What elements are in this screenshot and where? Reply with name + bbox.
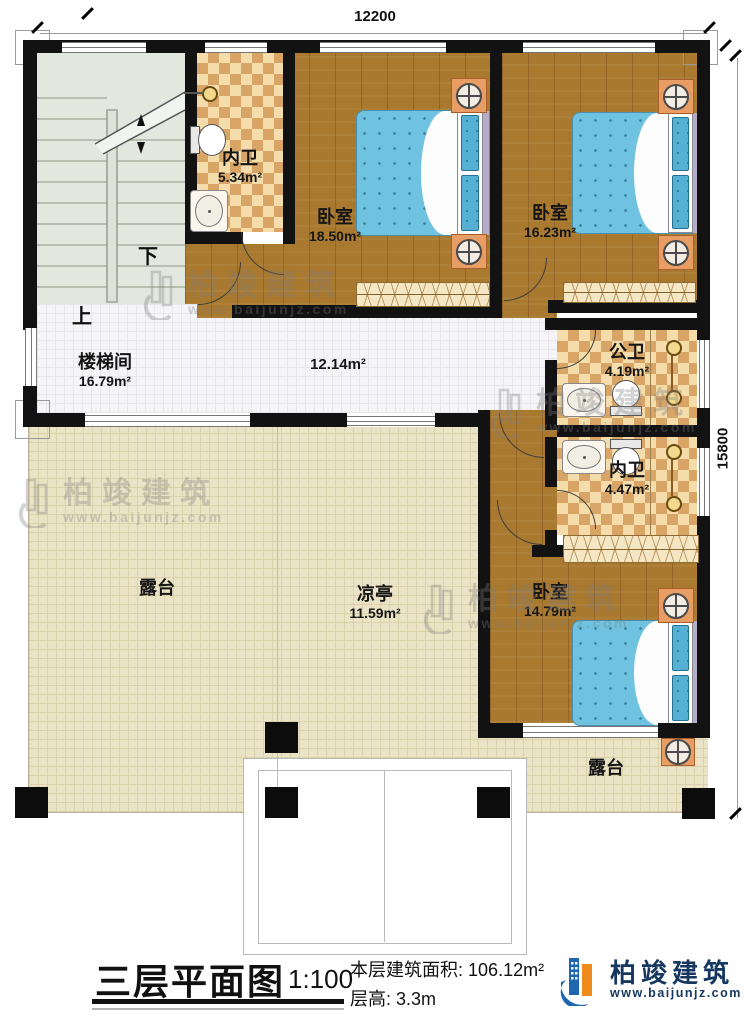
window: [85, 415, 250, 427]
room-label-stairwell: 楼梯间16.79m²: [45, 352, 165, 389]
wall: [490, 52, 502, 318]
porch-divider: [384, 770, 385, 942]
shower-knob: [666, 444, 682, 460]
bed-headstrip: [483, 111, 489, 235]
nightstand: [451, 78, 487, 113]
wall: [545, 318, 697, 330]
bed-sheet: [421, 111, 456, 235]
terrace-opening: [347, 416, 435, 426]
nightstand: [661, 738, 695, 766]
wall: [545, 360, 557, 430]
staircase: [37, 52, 185, 304]
plan-title: 三层平面图: [95, 953, 285, 1005]
wall: [545, 437, 557, 487]
toilet-icon: [610, 380, 640, 414]
wall: [478, 410, 490, 738]
floor-plan-page: 12200 15800: [0, 0, 750, 1023]
room-label-bathroom-public: 公卫4.19m²: [577, 342, 677, 379]
wall: [658, 723, 710, 738]
top-dimension-line: [40, 33, 708, 34]
brand-logo: 柏竣建筑 www.baijunjz.com: [556, 954, 742, 1006]
window: [25, 328, 37, 386]
top-dimension-label: 12200: [0, 8, 750, 25]
right-dimension-label: 15800: [715, 419, 732, 479]
wall-lamp-icon: [202, 86, 218, 102]
shower-knob: [666, 390, 682, 406]
wardrobe-bedroom-3: [563, 535, 699, 563]
wall-lamp-stem: [184, 92, 204, 94]
shower-knob: [666, 496, 682, 512]
dim-tick: [729, 807, 742, 820]
dim-tick: [719, 39, 732, 52]
column: [265, 787, 298, 818]
brand-name: 柏竣建筑: [610, 960, 742, 986]
pavilion-divider: [277, 427, 278, 812]
bed-sheet: [634, 113, 668, 233]
floor-area-info: 本层建筑面积: 106.12m²: [350, 956, 544, 982]
nightstand: [658, 588, 694, 623]
wall: [250, 413, 347, 427]
wall: [557, 425, 697, 437]
wall: [697, 312, 710, 340]
room-label-terrace-bottom: 露台: [556, 758, 656, 779]
stair-down-label: 下: [138, 240, 158, 269]
room-label-hallway: 12.14m²: [288, 356, 388, 373]
window: [699, 448, 710, 516]
column: [477, 787, 510, 818]
lamp-icon: [456, 83, 482, 109]
column: [15, 787, 48, 818]
dim-tick: [729, 49, 742, 62]
room-label-bedroom-1: 卧室18.50m²: [285, 207, 385, 244]
nightstand: [658, 79, 694, 114]
window: [699, 340, 710, 408]
window: [205, 42, 267, 53]
lamp-icon: [663, 593, 689, 619]
bed-pillows: [668, 621, 693, 725]
column: [682, 788, 715, 819]
plan-scale: 1:100: [288, 964, 353, 995]
sink-icon: [190, 190, 228, 232]
title-underline: [92, 999, 344, 1004]
room-label-bathroom-inner-1: 内卫5.34m²: [195, 148, 285, 185]
wall: [532, 545, 565, 557]
room-label-terrace-left: 露台: [107, 578, 207, 599]
lamp-icon: [456, 239, 482, 265]
wardrobe-bedroom-2: [563, 282, 696, 303]
window: [62, 42, 146, 53]
lamp-icon: [665, 739, 691, 765]
brand-url: www.baijunjz.com: [610, 986, 742, 1000]
stair-up-label: 上: [72, 300, 92, 329]
balcony-window: [523, 726, 658, 738]
lamp-icon: [663, 84, 689, 110]
nightstand: [658, 235, 694, 270]
bed-sheet: [634, 621, 668, 725]
bed-pillows: [668, 113, 693, 233]
floor-height-info: 层高: 3.3m: [350, 985, 436, 1011]
nightstand: [451, 234, 487, 269]
lamp-icon: [663, 240, 689, 266]
room-label-bedroom-3: 卧室14.79m²: [500, 582, 600, 619]
wall: [478, 723, 523, 738]
room-label-bathroom-inner-2: 内卫4.47m²: [577, 460, 677, 497]
sink-icon: [562, 383, 606, 417]
wall: [23, 413, 85, 427]
title-underline-2: [92, 1008, 344, 1010]
room-label-bedroom-2: 卧室16.23m²: [500, 203, 600, 240]
wall: [697, 40, 710, 312]
window: [523, 42, 655, 53]
room-label-pavilion: 凉亭11.59m²: [325, 584, 425, 621]
wall: [697, 408, 710, 448]
bed-bedroom-3: [572, 620, 694, 726]
right-dimension-line: [737, 58, 738, 818]
window: [320, 42, 446, 53]
column: [265, 722, 298, 753]
wall: [185, 232, 243, 244]
wall: [23, 40, 37, 330]
bed-pillows: [457, 111, 483, 235]
brand-logo-icon: [556, 954, 602, 1006]
wardrobe-bedroom-1: [356, 282, 490, 307]
